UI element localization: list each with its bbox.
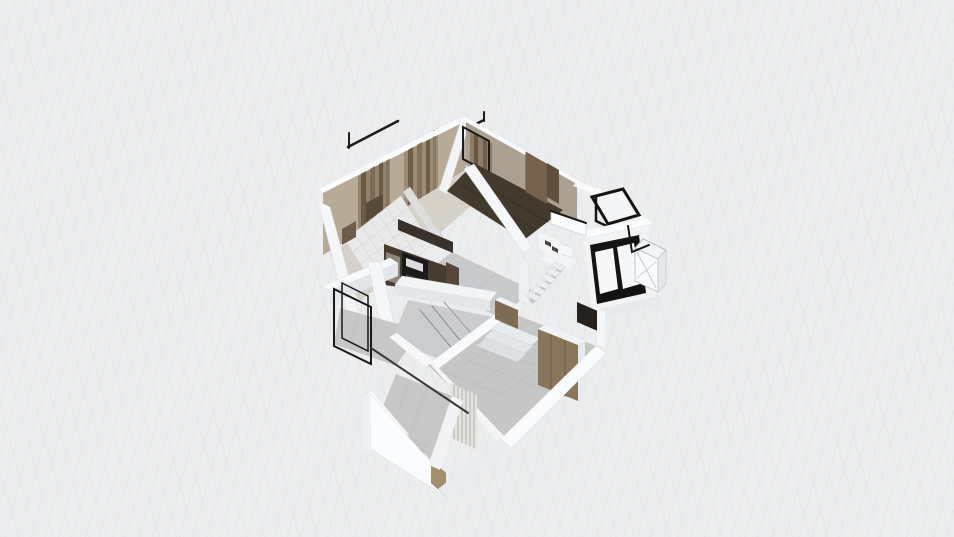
entry-right-wall-band (438, 440, 509, 497)
floorplan-3d-canvas[interactable] (0, 0, 954, 537)
bedroom1-curtain-left-stripe1 (361, 171, 366, 230)
stair-stringer (519, 257, 529, 305)
livingroom-right-upper-wall (597, 308, 605, 348)
bedroom2-door-leaf2 (547, 163, 559, 204)
curtain-rail-left (348, 121, 398, 147)
design-viewport-background (0, 0, 954, 537)
entry-outer-wall-left (362, 394, 371, 452)
